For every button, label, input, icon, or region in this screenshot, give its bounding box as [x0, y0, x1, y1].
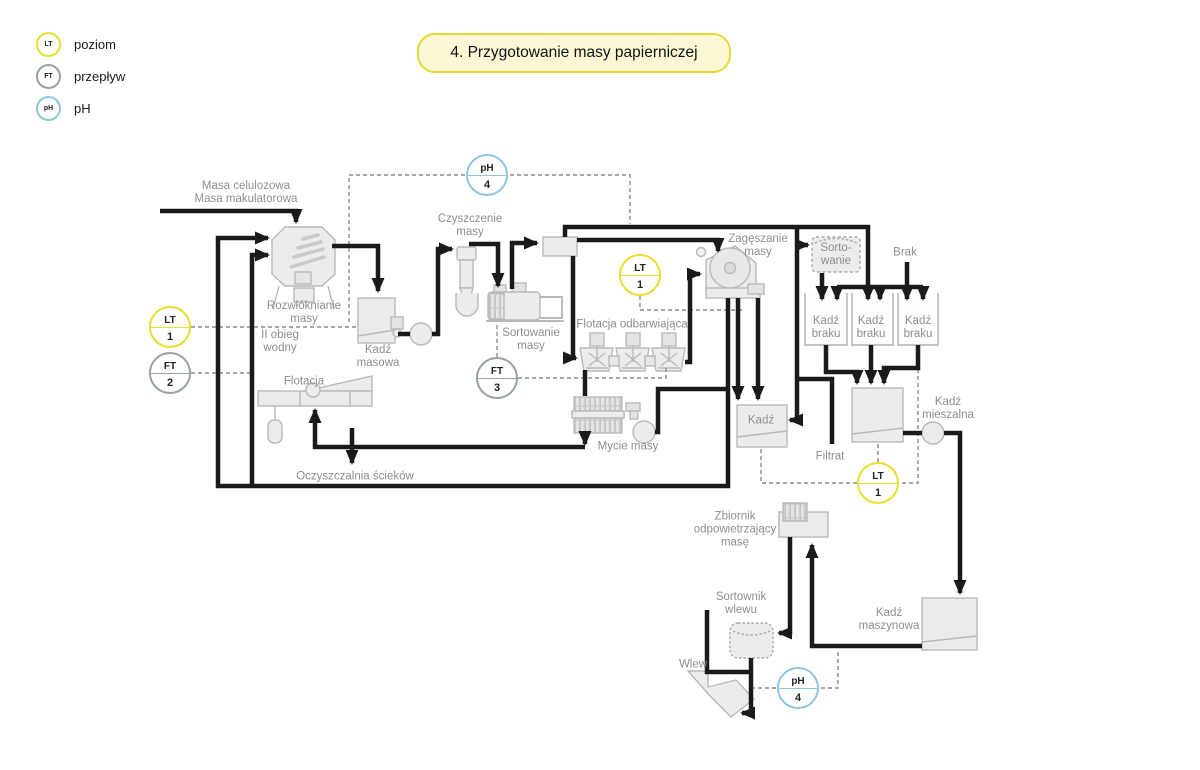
label-mycie-masy: Mycie masy — [598, 441, 659, 454]
label-sortowanie-masy: Sortowanie masy — [502, 327, 560, 353]
instrument-tag: FT — [151, 354, 189, 374]
label-kadz-braku-2: Kadź braku — [857, 315, 886, 341]
line-daf-return — [252, 255, 268, 486]
machine-chest-shape — [922, 598, 977, 650]
legend-label-ph: pH — [74, 101, 91, 116]
label-flotacja-odbarwiajaca: Flotacja odbarwiająca — [576, 319, 687, 332]
line-sorting-accept — [790, 227, 797, 420]
instrument-ft3: FT 3 — [476, 357, 518, 399]
deaeration-tank-shape — [779, 503, 828, 537]
ph-instrument-icon: pH — [36, 96, 61, 121]
label-kadz-mieszalna: Kadź mieszalna — [922, 396, 974, 422]
instrument-num: 1 — [637, 276, 643, 294]
instrument-num: 1 — [167, 328, 173, 346]
pulper-shape — [272, 227, 335, 309]
label-zbiornik-odpowietrzajacy: Zbiornik odpowietrzający masę — [694, 511, 776, 550]
flow-instrument-icon: FT — [36, 64, 61, 89]
headbox-screen-shape — [730, 623, 773, 658]
label-water-loop: II obieg wodny — [261, 329, 299, 355]
level-instrument-icon: LT — [36, 32, 61, 57]
label-kadz-masowa: Kadź masowa — [357, 344, 400, 370]
legend-label-level: poziom — [74, 37, 116, 52]
legend: LT poziom FT przepływ pH pH — [36, 32, 125, 128]
instrument-tag: pH — [468, 156, 506, 176]
washer-shape — [572, 397, 640, 433]
flotation-cells-shape — [580, 333, 685, 371]
cleaner-box-shape — [543, 237, 577, 256]
legend-item-ph: pH pH — [36, 96, 125, 121]
label-oczyszczalnia: Oczyszczalnia ścieków — [296, 471, 414, 484]
instrument-ph4-top: pH 4 — [466, 154, 508, 196]
legend-label-flow: przepływ — [74, 69, 125, 84]
instrument-num: 1 — [875, 484, 881, 502]
screen-shape — [486, 283, 564, 321]
instrument-tag: LT — [621, 256, 659, 276]
instrument-tag: pH — [779, 669, 817, 689]
instrument-lt1-mid: LT 1 — [619, 254, 661, 296]
label-wlew: Wlew — [679, 659, 707, 672]
process-diagram: LT poziom FT przepływ pH pH 4. Przygotow… — [0, 0, 1200, 770]
line-raw-stock-feed — [160, 211, 296, 222]
mixing-chest-shape — [852, 388, 903, 442]
instrument-num: 3 — [494, 379, 500, 397]
line-to-machine-chest — [944, 433, 960, 593]
instrument-lt1-left: LT 1 — [149, 306, 191, 348]
instrument-num: 2 — [167, 374, 173, 392]
legend-item-level: LT poziom — [36, 32, 125, 57]
label-flotacja: Flotacja — [284, 376, 324, 389]
line-pulper-out — [332, 246, 378, 291]
pump-kadz-masowa — [410, 323, 432, 345]
legend-item-flow: FT przepływ — [36, 64, 125, 89]
headbox-shape — [688, 671, 754, 717]
label-kadz-maszynowa: Kadź maszynowa — [859, 607, 920, 633]
instrument-ph4-bottom: pH 4 — [777, 667, 819, 709]
line-filtrat — [797, 379, 832, 444]
instrument-num: 4 — [795, 689, 801, 707]
label-sortownik-wlewu: Sortownik wlewu — [716, 591, 767, 617]
instrument-lt1-right: LT 1 — [857, 462, 899, 504]
line-washer-to-daf — [315, 410, 585, 447]
kadz-masowa-shape — [358, 298, 403, 343]
label-kadz-braku-3: Kadź braku — [904, 315, 933, 341]
instrument-ft2: FT 2 — [149, 352, 191, 394]
line-box-to-flotation — [573, 256, 576, 358]
label-zageszczanie: Zagęszanie masy — [728, 233, 787, 259]
instrument-num: 4 — [484, 176, 490, 194]
label-raw-stock: Masa celulozowa Masa makulatorowa — [195, 180, 298, 206]
label-pulper: Rozwłóknianie masy — [267, 300, 341, 326]
instrument-tag: FT — [478, 359, 516, 379]
label-filtrat: Filtrat — [816, 451, 845, 464]
line-washer-pump-out — [655, 389, 728, 432]
pump-mixing — [922, 422, 944, 444]
instrument-tag: LT — [151, 308, 189, 328]
page-title: 4. Przygotowanie masy papierniczej — [417, 33, 731, 73]
line-screen-to-box — [512, 243, 537, 289]
cyclone-shape — [456, 247, 478, 316]
label-kadz-braku-1: Kadź braku — [812, 315, 841, 341]
label-czyszczenie: Czyszczenie masy — [438, 213, 503, 239]
line-to-cyclone — [432, 249, 452, 334]
label-brak: Brak — [893, 247, 917, 260]
label-kadz: Kadź — [748, 415, 774, 428]
instrument-tag: LT — [859, 464, 897, 484]
label-sorto-box: Sorto- wanie — [820, 242, 851, 268]
line-to-headbox-screen — [779, 537, 790, 633]
